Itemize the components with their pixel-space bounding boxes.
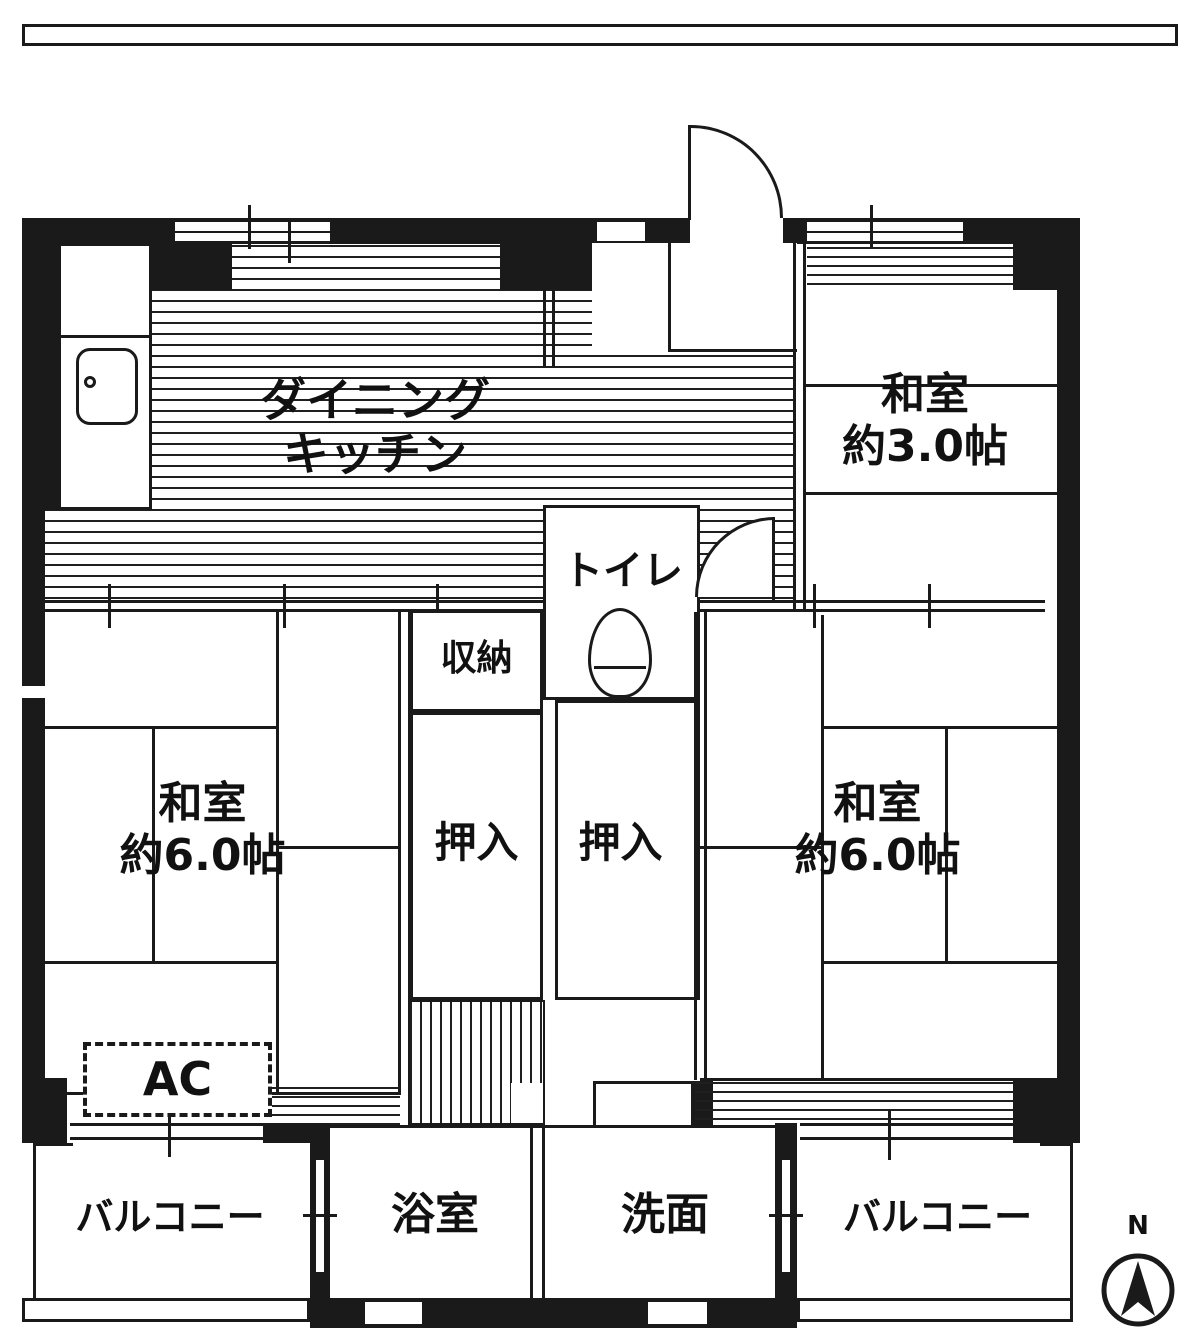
bathroom-label: 浴室 [340, 1188, 530, 1242]
balcony-door-tick [888, 1110, 891, 1160]
ac-unit-box: AC [83, 1042, 272, 1117]
sliding-door-line [45, 609, 398, 612]
washitsu3-edge-hatch [807, 247, 1013, 287]
sliding-door-tick [928, 584, 931, 628]
balcony-left-top [33, 1143, 73, 1146]
window-tick [248, 205, 251, 249]
closet-right-label: 押入 [562, 818, 679, 868]
tatami-line [821, 961, 1060, 964]
bath-washroom-divider [542, 1128, 545, 1300]
dining-kitchen-label-line1: ダイニング [260, 373, 490, 427]
corridor-step-line [593, 1081, 596, 1125]
kitchen-counter-divider [58, 335, 152, 338]
wall-corner-bottom-left [22, 1078, 67, 1143]
washitsu3-label: 和室 約3.0帖 [790, 362, 1060, 480]
sliding-door-line [700, 609, 1045, 612]
window-tick [288, 219, 291, 263]
room-wall-line [700, 1078, 1058, 1081]
step-hatch-notch [511, 1083, 543, 1123]
balcony-left-edge [33, 1143, 36, 1300]
balcony-door-line [800, 1137, 1015, 1140]
window-entrance-side [595, 220, 647, 243]
ac-label: AC [87, 1046, 268, 1113]
sliding-door-line [700, 600, 1045, 603]
bath-top-line [310, 1125, 797, 1128]
tatami-line [45, 961, 279, 964]
room-wall-line [398, 612, 401, 1095]
washroom-label: 洗面 [565, 1188, 765, 1242]
sliding-door-tick [813, 584, 816, 628]
balcony-left-rail [22, 1298, 310, 1322]
washroom-bottom-window [648, 1302, 707, 1324]
tatami-line [805, 492, 1057, 495]
wall-corner-bottom-right [1013, 1080, 1080, 1143]
room-wall-line [694, 612, 697, 1080]
storage-label: 収納 [413, 636, 540, 682]
wall-left [22, 218, 45, 1143]
sliding-door-line [45, 600, 398, 603]
compass-north-label: N [1093, 1211, 1183, 1241]
hall-wall-line [552, 288, 555, 367]
genkan-area [592, 243, 797, 352]
washitsu6-left-label: 和室 約6.0帖 [55, 765, 350, 895]
washitsu3-label-line1: 和室 [881, 369, 969, 421]
toilet-door-leaf [772, 517, 775, 600]
window-tick [870, 205, 873, 249]
wall-left-joint-notch [22, 686, 45, 698]
threshold-hatch-left [265, 1087, 400, 1125]
wall-corner-top-right [1013, 218, 1080, 290]
genkan-side-line [668, 243, 671, 352]
dining-kitchen-label-line2: キッチン [283, 427, 467, 481]
entrance-opening [690, 218, 783, 244]
window-tick [303, 1214, 337, 1217]
sink-faucet [84, 376, 96, 388]
washitsu6-left-label-line2: 約6.0帖 [120, 830, 286, 882]
sliding-door-tick [283, 584, 286, 628]
window-top-kitchen [175, 220, 330, 243]
entrance-door-swing-arc [691, 125, 783, 218]
washitsu3-label-line2: 約3.0帖 [842, 421, 1008, 473]
balcony-door-tick [168, 1113, 171, 1157]
site-outline-bar [22, 24, 1178, 46]
tatami-line [45, 726, 279, 729]
tatami-line [821, 726, 1060, 729]
threshold-hatch-right [695, 1082, 1015, 1123]
balcony-right-rail [797, 1298, 1073, 1322]
toilet-bowl-line [594, 666, 646, 669]
balcony-right-top [1040, 1143, 1073, 1146]
balcony-right-label: バルコニー [805, 1192, 1070, 1242]
floor-plan: AC ダイニング キッチン 和室 約3.0帖 トイレ 収納 押入 押入 和室 約… [0, 0, 1200, 1344]
washitsu6-right-label-line1: 和室 [834, 778, 922, 830]
washitsu6-right-label-line2: 約6.0帖 [795, 830, 961, 882]
corridor-step-line [593, 1081, 693, 1084]
wall-pillar-entrance [500, 243, 592, 290]
window-top-washitsu3 [807, 220, 963, 243]
closet-left-label: 押入 [418, 818, 535, 868]
sliding-door-tick [108, 584, 111, 628]
washitsu6-left-label-line1: 和室 [159, 778, 247, 830]
sliding-door-line [398, 600, 543, 603]
dining-kitchen-label: ダイニング キッチン [180, 372, 570, 482]
genkan-step-line [668, 349, 797, 352]
balcony-door-line [800, 1123, 1015, 1126]
hall-wall-line [543, 288, 546, 367]
balcony-left-label: バルコニー [40, 1192, 300, 1242]
bath-washroom-divider [530, 1128, 533, 1300]
washitsu6-right-label: 和室 約6.0帖 [730, 765, 1025, 895]
bath-bottom-window [365, 1302, 422, 1324]
compass-icon: N [1093, 1215, 1183, 1330]
balcony-right-edge [1070, 1143, 1073, 1300]
wall-right [1057, 218, 1080, 1143]
toilet-label: トイレ [548, 548, 698, 596]
window-tick [769, 1214, 803, 1217]
